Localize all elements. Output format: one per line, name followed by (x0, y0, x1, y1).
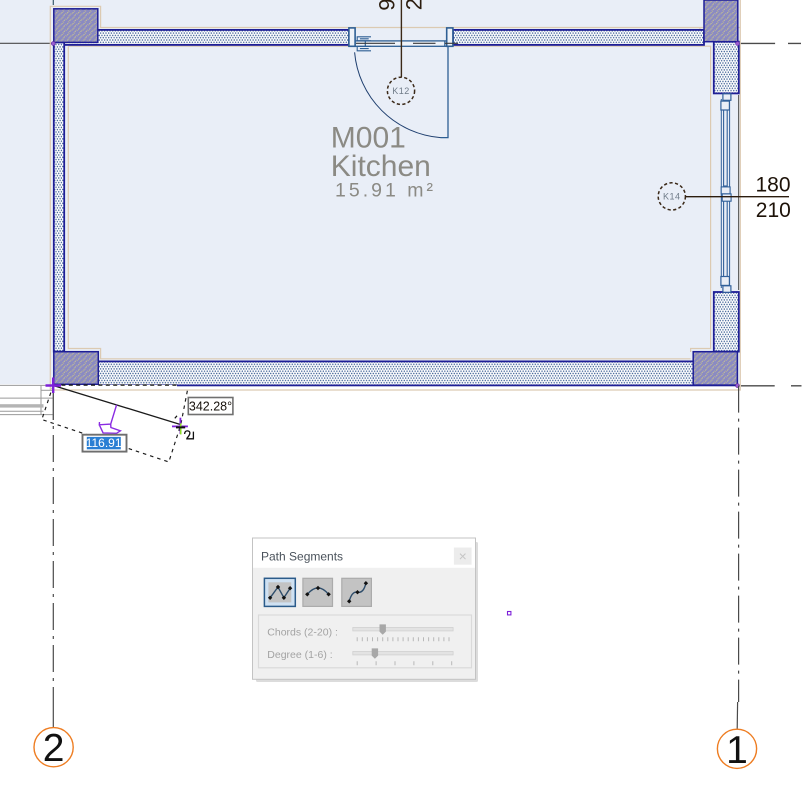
svg-text:Path Segments: Path Segments (261, 549, 343, 563)
svg-text:180: 180 (756, 173, 791, 196)
svg-text:Degree (1-6) :: Degree (1-6) : (267, 649, 332, 661)
svg-text:×: × (459, 548, 467, 564)
svg-text:1: 1 (726, 729, 748, 772)
svg-text:210: 210 (756, 199, 791, 222)
svg-text:K14: K14 (663, 192, 681, 202)
svg-text:116.91: 116.91 (86, 436, 122, 450)
svg-text:2: 2 (43, 727, 65, 770)
svg-text:342.28°: 342.28° (189, 399, 232, 413)
svg-text:210: 210 (402, 0, 427, 10)
svg-text:90: 90 (374, 0, 399, 11)
svg-text:15.91 m²: 15.91 m² (335, 179, 436, 201)
svg-text:K12: K12 (392, 86, 410, 96)
svg-text:Kitchen: Kitchen (331, 150, 431, 183)
svg-text:Chords (2-20) :: Chords (2-20) : (267, 626, 338, 638)
